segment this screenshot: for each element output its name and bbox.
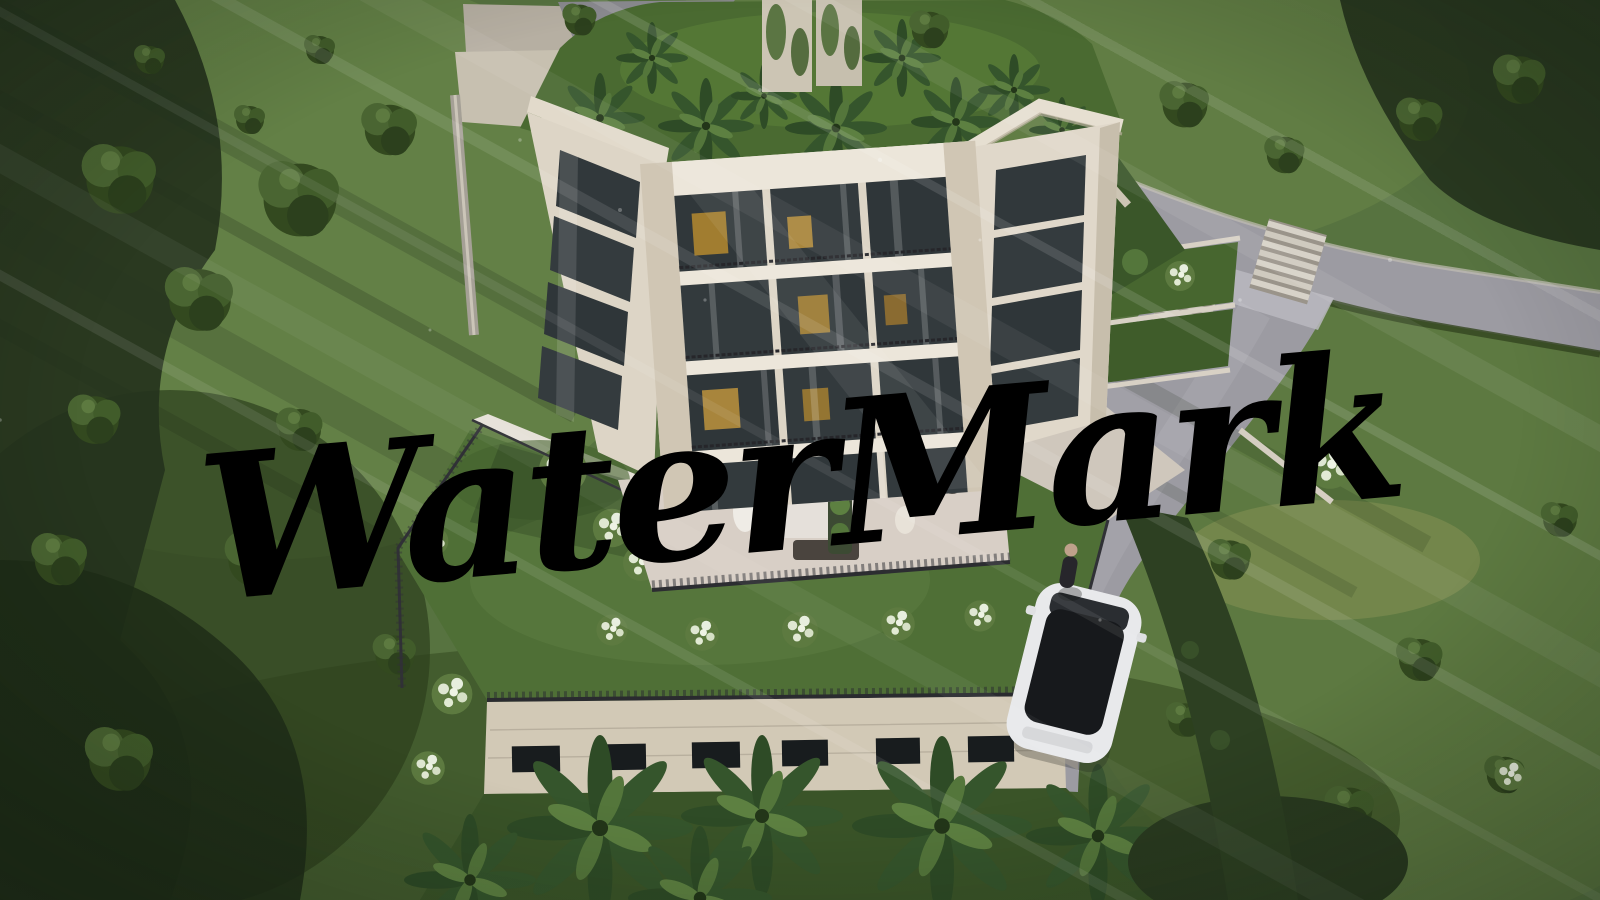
vignette-overlay (0, 0, 1600, 900)
render-stage: WaterMark (0, 0, 1600, 900)
scene-render: WaterMark (0, 0, 1600, 900)
